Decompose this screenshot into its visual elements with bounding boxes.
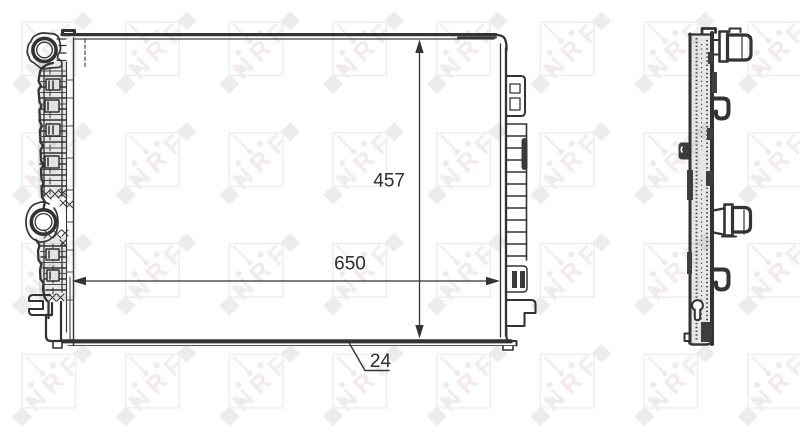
svg-text:457: 457: [373, 171, 405, 192]
svg-text:24: 24: [370, 351, 392, 372]
svg-text:650: 650: [334, 254, 366, 275]
